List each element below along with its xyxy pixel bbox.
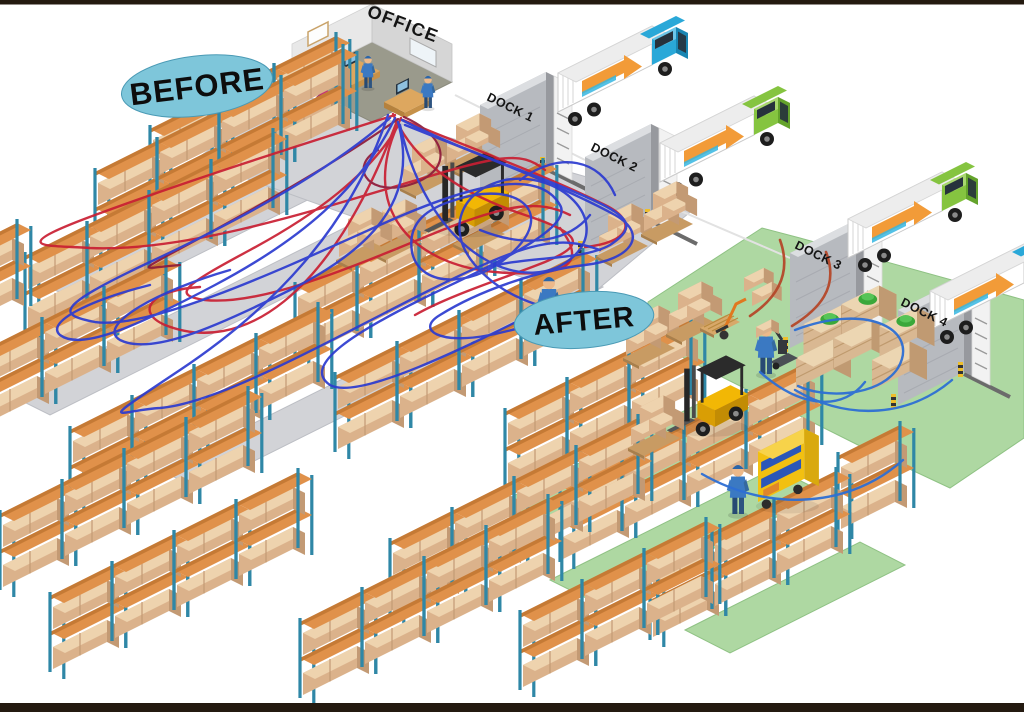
truck-2 bbox=[660, 86, 790, 196]
rack-row bbox=[0, 219, 32, 337]
top-border bbox=[0, 0, 1024, 5]
diagram-canvas: BEFORE AFTER OFFICE DOCK 1 DOCK 2 DOCK 3… bbox=[0, 0, 1024, 712]
truck-1 bbox=[558, 16, 688, 126]
bottom-border bbox=[0, 703, 1024, 712]
warehouse-before-after-diagram: BEFORE AFTER OFFICE DOCK 1 DOCK 2 DOCK 3… bbox=[0, 0, 1024, 712]
